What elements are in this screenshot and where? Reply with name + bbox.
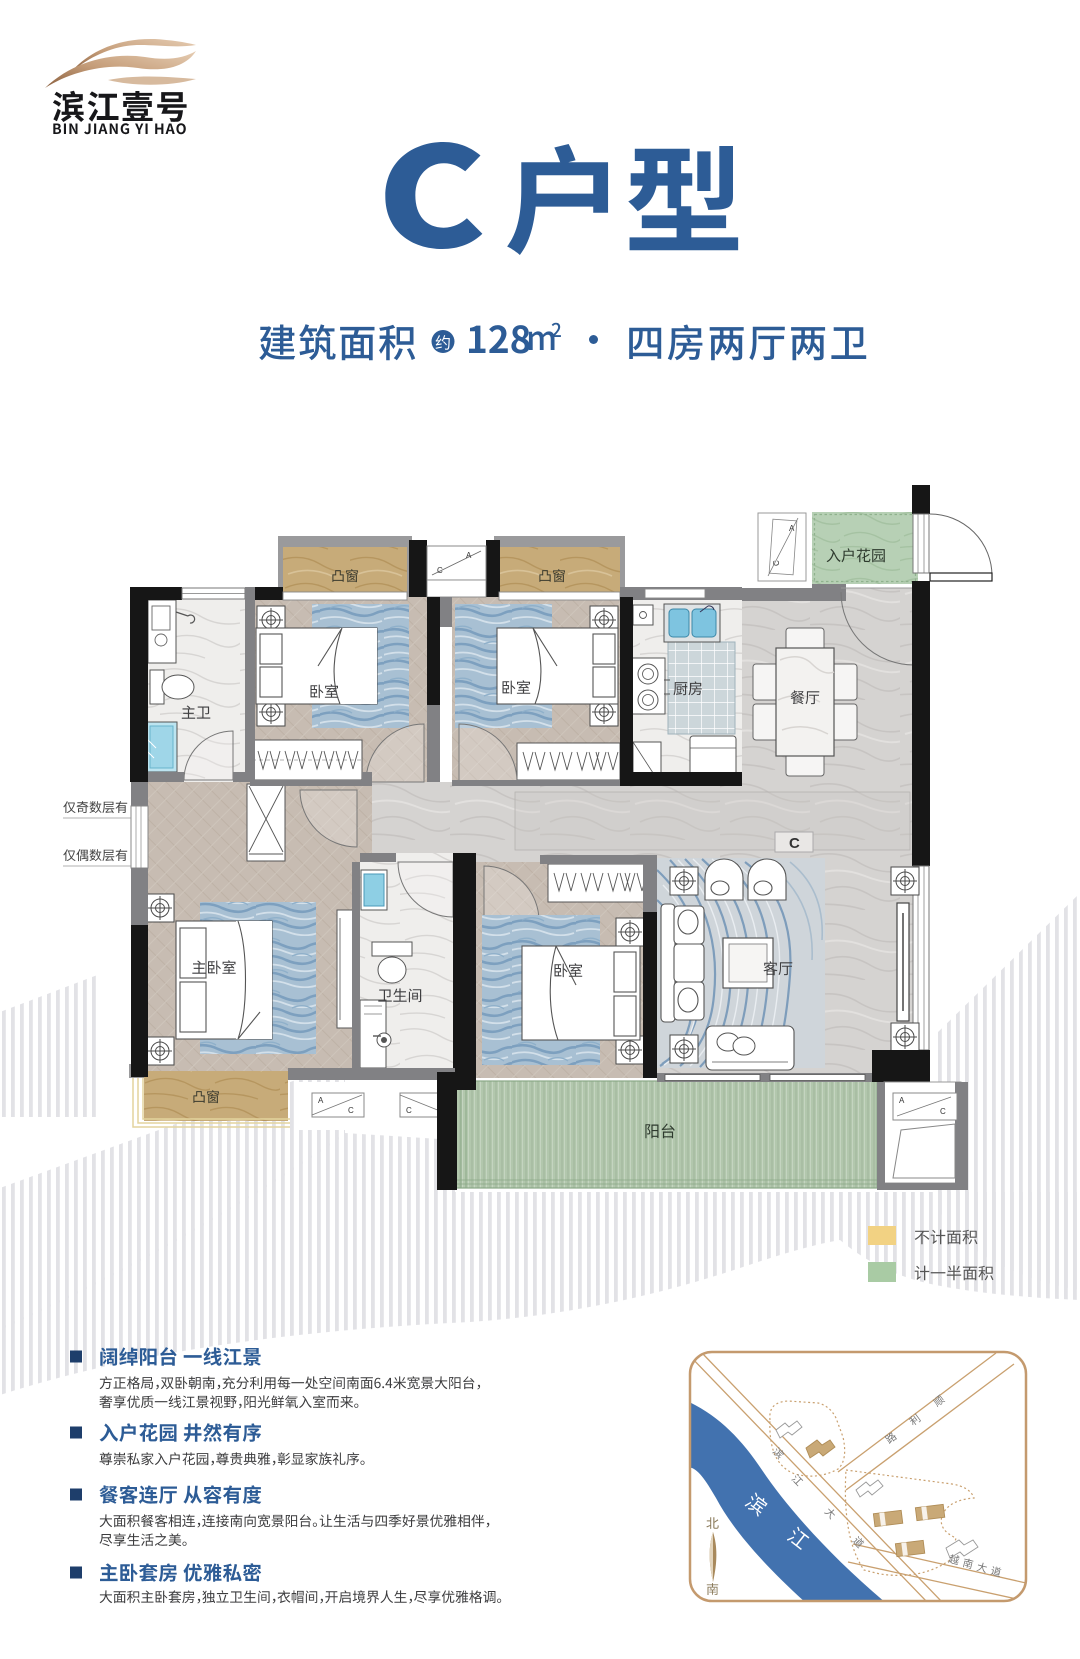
svg-text:A: A	[899, 1096, 905, 1105]
svg-text:A: A	[466, 551, 472, 560]
svg-text:C: C	[772, 560, 781, 566]
svg-text:A: A	[789, 524, 795, 533]
svg-text:A: A	[318, 1096, 324, 1105]
svg-text:C: C	[437, 566, 443, 575]
svg-text:C: C	[940, 1107, 946, 1116]
svg-text:C: C	[789, 835, 800, 852]
svg-text:C: C	[406, 1106, 412, 1115]
svg-text:C: C	[348, 1106, 354, 1115]
